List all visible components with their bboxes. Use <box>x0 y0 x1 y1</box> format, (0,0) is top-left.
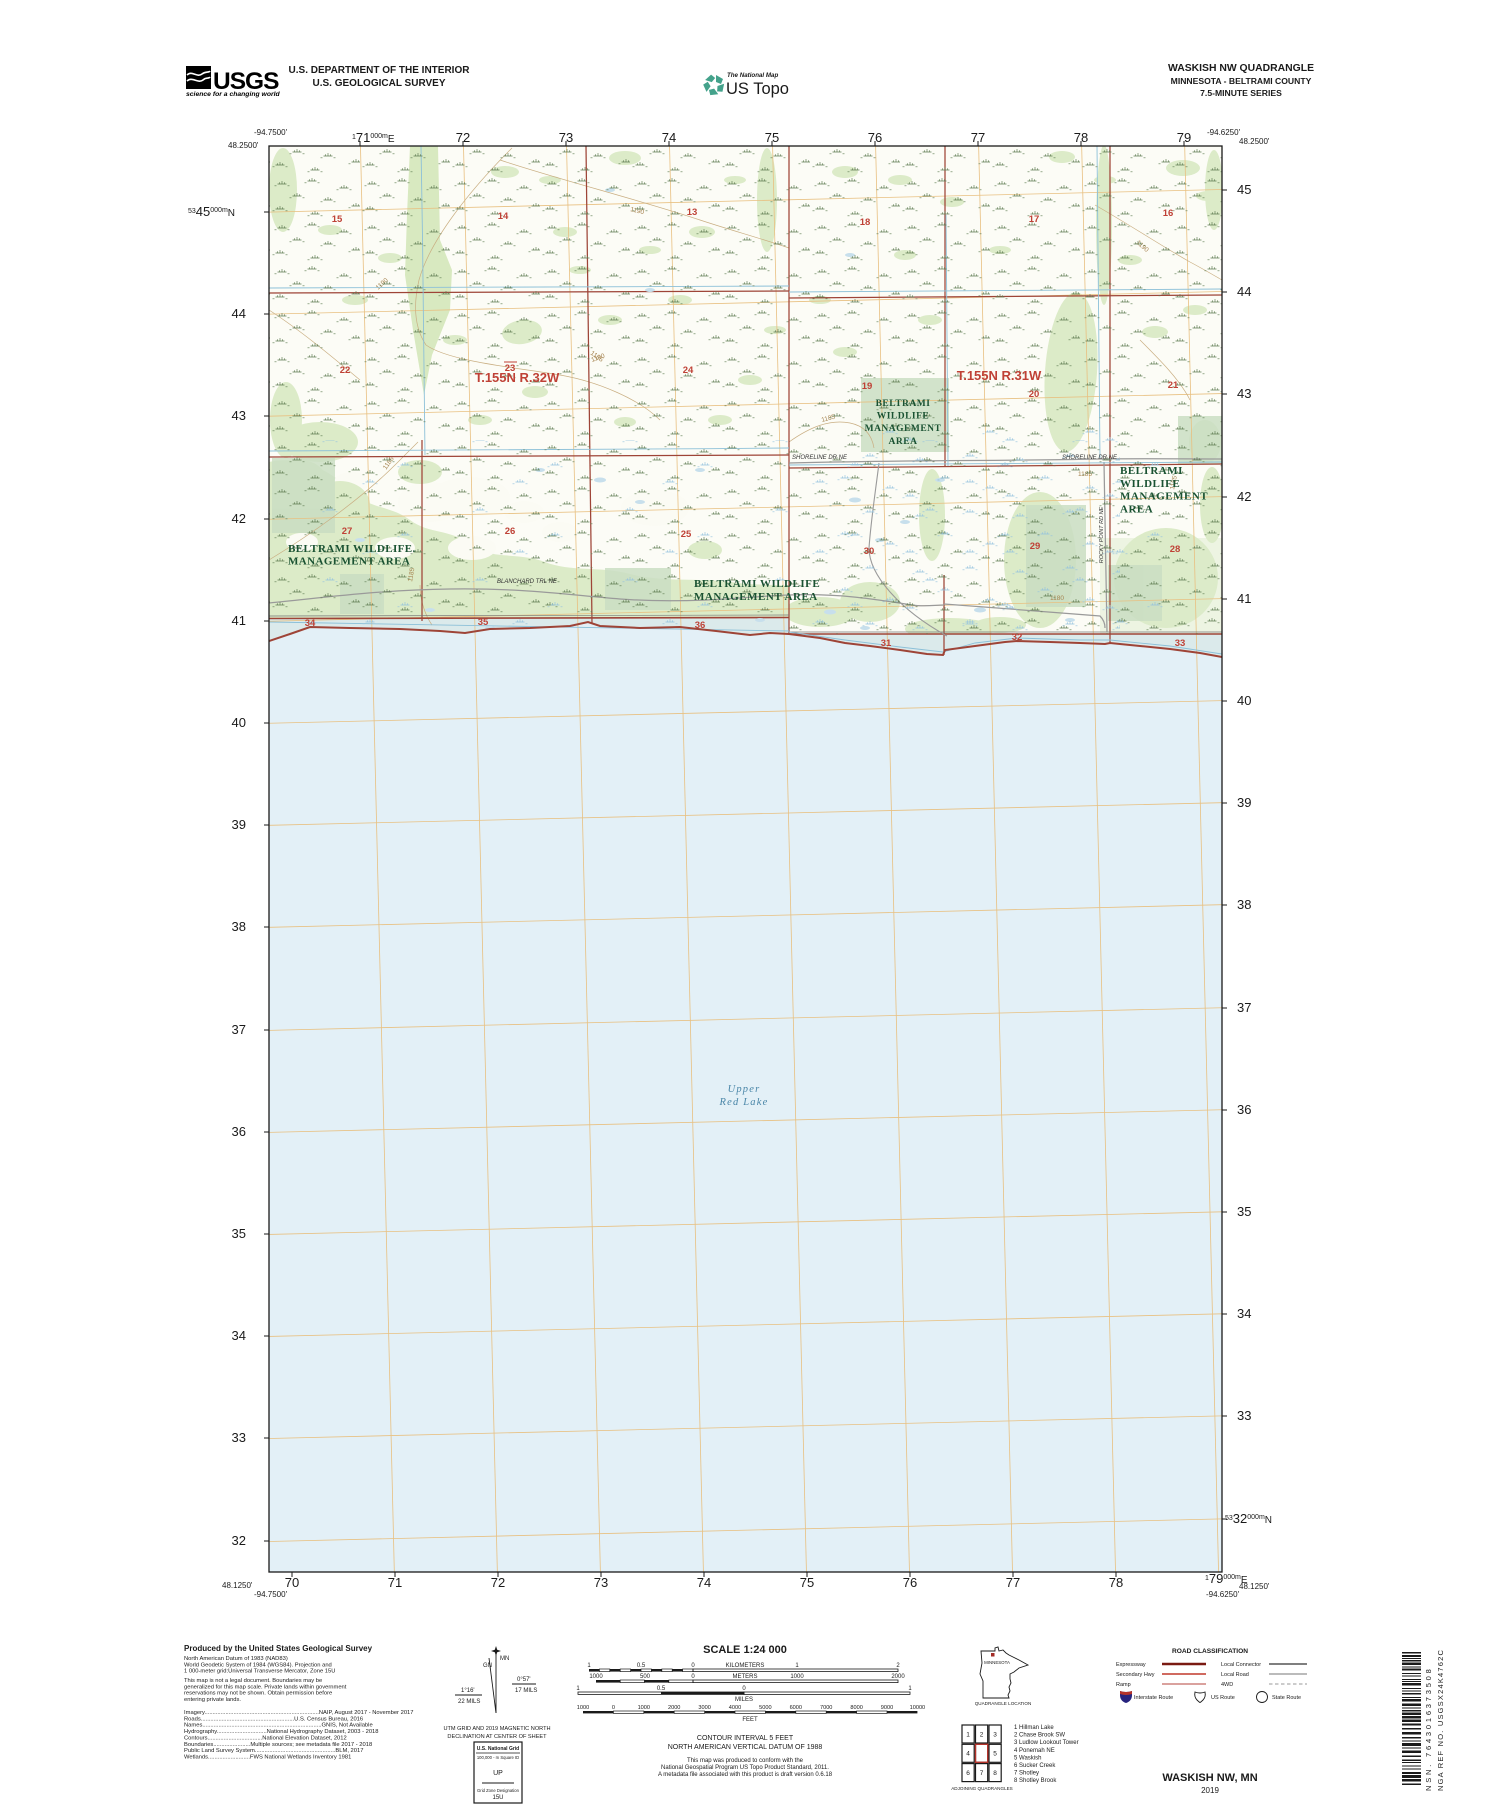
svg-text:WILDLIFE: WILDLIFE <box>877 412 930 422</box>
svg-text:100,000 - m Square ID: 100,000 - m Square ID <box>477 1755 519 1760</box>
svg-text:2000: 2000 <box>668 1705 680 1711</box>
svg-text:KILOMETERS: KILOMETERS <box>726 1663 765 1669</box>
svg-text:AREA: AREA <box>889 437 918 447</box>
svg-text:Secondary Hwy: Secondary Hwy <box>1116 1672 1155 1678</box>
svg-text:1: 1 <box>587 1663 591 1669</box>
svg-text:7 Shotley: 7 Shotley <box>1014 1771 1039 1777</box>
svg-text:U.S. DEPARTMENT OF THE INTERIO: U.S. DEPARTMENT OF THE INTERIOR <box>289 65 471 76</box>
svg-text:This map was produced to confo: This map was produced to conform with th… <box>687 1758 804 1764</box>
svg-text:Names.........................: Names...................................… <box>184 1723 373 1729</box>
svg-text:26: 26 <box>505 526 516 537</box>
svg-text:500: 500 <box>640 1674 651 1680</box>
svg-text:4 Ponemah NE: 4 Ponemah NE <box>1014 1748 1055 1754</box>
svg-text:generalized for this map scale: generalized for this map scale. Private … <box>184 1684 347 1690</box>
svg-text:BELTRAMI: BELTRAMI <box>876 399 931 409</box>
svg-text:METERS: METERS <box>732 1674 757 1680</box>
svg-text:Contours......................: Contours................................… <box>184 1735 347 1741</box>
svg-text:35: 35 <box>478 617 489 628</box>
svg-text:WASKISH NW QUADRANGLE: WASKISH NW QUADRANGLE <box>1168 63 1314 74</box>
svg-text:U.S. GEOLOGICAL SURVEY: U.S. GEOLOGICAL SURVEY <box>313 78 446 89</box>
svg-text:70: 70 <box>285 1575 299 1590</box>
svg-text:1: 1 <box>908 1686 912 1692</box>
svg-text:SCALE 1:24 000: SCALE 1:24 000 <box>703 1644 787 1656</box>
svg-text:1000: 1000 <box>589 1674 603 1680</box>
svg-text:27: 27 <box>342 526 353 537</box>
svg-text:Imagery.......................: Imagery.................................… <box>184 1710 414 1716</box>
svg-text:Public Land Survey System..: Public Land Survey System...............… <box>184 1748 363 1754</box>
svg-text:UTM GRID AND 2019 MAGNETIC NOR: UTM GRID AND 2019 MAGNETIC NORTH <box>443 1726 550 1732</box>
svg-text:7: 7 <box>980 1770 984 1777</box>
svg-text:8: 8 <box>993 1770 997 1777</box>
svg-text:33: 33 <box>1237 1408 1251 1423</box>
svg-text:33: 33 <box>1175 638 1186 649</box>
svg-text:7.5-MINUTE SERIES: 7.5-MINUTE SERIES <box>1200 88 1282 98</box>
svg-text:1: 1 <box>966 1731 970 1738</box>
svg-text:0: 0 <box>691 1663 695 1669</box>
svg-text:MN: MN <box>500 1656 509 1662</box>
svg-text:1000: 1000 <box>638 1705 650 1711</box>
svg-text:Local Connector: Local Connector <box>1221 1662 1261 1668</box>
svg-text:34: 34 <box>305 618 316 629</box>
svg-text:MINNESOTA: MINNESOTA <box>984 1660 1010 1665</box>
svg-text:BLANCHARD TRL NE: BLANCHARD TRL NE <box>497 579 558 585</box>
svg-text:6: 6 <box>966 1770 970 1777</box>
svg-text:-94.6250': -94.6250' <box>1206 1590 1240 1599</box>
svg-text:State Route: State Route <box>1272 1695 1301 1701</box>
svg-text:4000: 4000 <box>729 1705 741 1711</box>
svg-text:3000: 3000 <box>698 1705 710 1711</box>
svg-text:0.5: 0.5 <box>637 1663 646 1669</box>
svg-text:74: 74 <box>697 1575 711 1590</box>
svg-text:45: 45 <box>1237 182 1251 197</box>
svg-text:8 Shotley Brook: 8 Shotley Brook <box>1014 1778 1057 1784</box>
svg-text:1000: 1000 <box>790 1674 804 1680</box>
svg-text:ROCKY POINT RD NE: ROCKY POINT RD NE <box>1099 506 1105 563</box>
svg-text:2019: 2019 <box>1201 1786 1219 1795</box>
svg-text:NGA REF NO. USGSX24K4762C: NGA REF NO. USGSX24K4762C <box>1436 1649 1445 1791</box>
svg-text:World Geodetic System of 1984: World Geodetic System of 1984 (WGS84). P… <box>184 1662 332 1668</box>
svg-text:31: 31 <box>881 638 892 649</box>
svg-text:16: 16 <box>1163 208 1174 219</box>
svg-text:48.2500': 48.2500' <box>228 141 259 150</box>
svg-text:75: 75 <box>800 1575 814 1590</box>
svg-text:5: 5 <box>993 1751 997 1758</box>
svg-text:36: 36 <box>1237 1102 1251 1117</box>
svg-text:SHORELINE DR NE: SHORELINE DR NE <box>1062 455 1118 461</box>
svg-text:CONTOUR INTERVAL 5 FEET: CONTOUR INTERVAL 5 FEET <box>697 1735 794 1742</box>
svg-text:1: 1 <box>795 1663 799 1669</box>
svg-text:National Geospatial Program US: National Geospatial Program US Topo Prod… <box>661 1765 829 1771</box>
svg-text:AREA: AREA <box>1120 503 1153 515</box>
svg-text:3: 3 <box>993 1731 997 1738</box>
svg-text:22: 22 <box>340 365 351 376</box>
svg-text:20: 20 <box>1029 389 1040 400</box>
svg-text:15U: 15U <box>492 1795 503 1801</box>
svg-text:42: 42 <box>1237 489 1251 504</box>
svg-text:73: 73 <box>594 1575 608 1590</box>
svg-text:1: 1 <box>576 1686 580 1692</box>
svg-text:BELTRAMI WILDLIFE.: BELTRAMI WILDLIFE. <box>288 543 416 555</box>
svg-text:76: 76 <box>903 1575 917 1590</box>
svg-text:Red Lake: Red Lake <box>719 1097 769 1108</box>
svg-text:Wetlands......................: Wetlands..........................FWS Na… <box>184 1755 351 1761</box>
svg-text:MANAGEMENT AREA: MANAGEMENT AREA <box>694 591 818 603</box>
svg-text:UP: UP <box>493 1770 503 1777</box>
svg-text:5345000mN: 5345000mN <box>188 204 235 219</box>
svg-text:39: 39 <box>1237 795 1251 810</box>
svg-text:5000: 5000 <box>759 1705 771 1711</box>
svg-text:ADJOINING QUADRANGLES: ADJOINING QUADRANGLES <box>951 1786 1013 1791</box>
svg-text:0: 0 <box>742 1686 746 1692</box>
svg-text:DECLINATION AT CENTER OF SHEET: DECLINATION AT CENTER OF SHEET <box>447 1734 547 1740</box>
svg-text:Produced by the United States: Produced by the United States Geological… <box>184 1644 373 1653</box>
svg-text:WILDLIFE: WILDLIFE <box>1120 478 1180 490</box>
svg-text:The National Map: The National Map <box>727 72 778 79</box>
svg-text:7000: 7000 <box>820 1705 832 1711</box>
svg-text:28: 28 <box>1170 544 1181 555</box>
svg-text:36: 36 <box>695 620 706 631</box>
svg-text:21: 21 <box>1168 380 1179 391</box>
svg-text:Hydrography...................: Hydrography.............................… <box>184 1729 379 1735</box>
svg-text:171000mE: 171000mE <box>352 130 395 145</box>
svg-text:0°57': 0°57' <box>517 1677 531 1683</box>
svg-text:4WD: 4WD <box>1221 1682 1233 1688</box>
svg-text:24: 24 <box>683 365 694 376</box>
svg-text:3 Ludlow Lookout Tower: 3 Ludlow Lookout Tower <box>1014 1740 1079 1746</box>
svg-text:35: 35 <box>1237 1204 1251 1219</box>
svg-text:US Topo: US Topo <box>726 80 789 98</box>
svg-text:A metadata file associated wit: A metadata file associated with this pro… <box>658 1772 833 1778</box>
svg-text:Roads.........................: Roads...................................… <box>184 1716 363 1722</box>
svg-text:6 Sucker Creek: 6 Sucker Creek <box>1014 1763 1056 1769</box>
svg-text:2: 2 <box>896 1663 900 1669</box>
svg-text:Expressway: Expressway <box>1116 1662 1146 1668</box>
svg-text:17: 17 <box>1029 214 1040 225</box>
svg-text:30: 30 <box>864 546 875 557</box>
svg-text:17 MILS: 17 MILS <box>515 1688 537 1694</box>
svg-text:-94.7500': -94.7500' <box>254 128 288 137</box>
svg-text:41: 41 <box>1237 591 1251 606</box>
svg-text:reservations may not be shown.: reservations may not be shown. Obtain pe… <box>184 1691 332 1697</box>
svg-text:NORTH AMERICAN VERTICAL DATUM: NORTH AMERICAN VERTICAL DATUM OF 1988 <box>668 1744 823 1751</box>
svg-text:15: 15 <box>332 214 343 225</box>
svg-text:36: 36 <box>232 1124 246 1139</box>
svg-text:71: 71 <box>388 1575 402 1590</box>
svg-text:entering private lands.: entering private lands. <box>184 1697 241 1703</box>
svg-text:13: 13 <box>687 207 698 218</box>
svg-text:32: 32 <box>232 1533 246 1548</box>
svg-text:25: 25 <box>681 529 692 540</box>
svg-text:Local Road: Local Road <box>1221 1672 1249 1678</box>
svg-text:Ramp: Ramp <box>1116 1682 1131 1688</box>
svg-text:35: 35 <box>232 1226 246 1241</box>
svg-text:40: 40 <box>232 715 246 730</box>
svg-text:MANAGEMENT AREA: MANAGEMENT AREA <box>288 556 410 568</box>
svg-text:4: 4 <box>966 1751 970 1758</box>
svg-text:2 Chase Brook SW: 2 Chase Brook SW <box>1014 1733 1065 1739</box>
svg-text:29: 29 <box>1030 541 1041 552</box>
svg-text:32: 32 <box>1012 632 1023 643</box>
svg-text:38: 38 <box>232 919 246 934</box>
svg-text:-94.6250': -94.6250' <box>1207 128 1241 137</box>
svg-text:1°16': 1°16' <box>461 1688 475 1694</box>
svg-text:10000: 10000 <box>910 1705 926 1711</box>
svg-text:GN: GN <box>483 1663 492 1669</box>
svg-text:77: 77 <box>1006 1575 1020 1590</box>
svg-text:44: 44 <box>1237 284 1251 299</box>
svg-text:72: 72 <box>491 1575 505 1590</box>
svg-text:BELTRAMI WILDLIFE: BELTRAMI WILDLIFE <box>694 578 820 590</box>
svg-text:T.155N R.31W: T.155N R.31W <box>957 368 1042 383</box>
svg-text:Interstate Route: Interstate Route <box>1134 1695 1173 1701</box>
svg-text:QUADRANGLE LOCATION: QUADRANGLE LOCATION <box>975 1701 1032 1706</box>
svg-text:33: 33 <box>232 1430 246 1445</box>
svg-text:0: 0 <box>691 1674 695 1680</box>
svg-text:18: 18 <box>860 217 871 228</box>
svg-text:2: 2 <box>980 1731 984 1738</box>
svg-text:48.2500': 48.2500' <box>1239 137 1270 146</box>
svg-text:FEET: FEET <box>742 1717 758 1723</box>
svg-text:U.S. National Grid: U.S. National Grid <box>477 1746 520 1752</box>
svg-text:US Route: US Route <box>1211 1695 1235 1701</box>
svg-text:34: 34 <box>232 1328 246 1343</box>
svg-text:0.5: 0.5 <box>657 1686 666 1692</box>
svg-text:2000: 2000 <box>891 1674 905 1680</box>
svg-text:34: 34 <box>1237 1306 1251 1321</box>
svg-text:MILES: MILES <box>735 1697 753 1703</box>
svg-text:14: 14 <box>498 211 509 222</box>
svg-text:9000: 9000 <box>881 1705 893 1711</box>
svg-text:39: 39 <box>232 817 246 832</box>
svg-text:Grid Zone Designation: Grid Zone Designation <box>477 1788 520 1793</box>
svg-text:78: 78 <box>1109 1575 1123 1590</box>
svg-text:1 000-meter grid:Universal Tra: 1 000-meter grid:Universal Transverse Me… <box>184 1669 335 1675</box>
svg-text:This map is not a legal docume: This map is not a legal document. Bounda… <box>184 1678 322 1684</box>
svg-text:WASKISH NW, MN: WASKISH NW, MN <box>1162 1772 1257 1784</box>
svg-text:ROAD CLASSIFICATION: ROAD CLASSIFICATION <box>1172 1648 1248 1655</box>
svg-text:42: 42 <box>232 511 246 526</box>
svg-text:0: 0 <box>612 1705 615 1711</box>
svg-text:5 Waskish: 5 Waskish <box>1014 1755 1041 1761</box>
svg-text:MINNESOTA - BELTRAMI COUNTY: MINNESOTA - BELTRAMI COUNTY <box>1171 76 1312 86</box>
svg-text:38: 38 <box>1237 897 1251 912</box>
svg-text:MANAGEMENT: MANAGEMENT <box>865 424 942 434</box>
svg-text:19: 19 <box>862 381 873 392</box>
svg-text:1 Hillman Lake: 1 Hillman Lake <box>1014 1725 1054 1731</box>
svg-text:SHORELINE DR NE: SHORELINE DR NE <box>792 455 848 461</box>
svg-text:-94.7500': -94.7500' <box>254 1590 288 1599</box>
svg-text:North American Datum of 1983 (: North American Datum of 1983 (NAD83) <box>184 1656 288 1662</box>
svg-text:22 MILS: 22 MILS <box>458 1699 480 1705</box>
svg-text:5332000mN: 5332000mN <box>1225 1511 1272 1526</box>
svg-text:48.1250': 48.1250' <box>222 1581 253 1590</box>
svg-text:179000mE: 179000mE <box>1205 1571 1248 1586</box>
svg-text:science for a changing world: science for a changing world <box>186 91 281 98</box>
svg-text:NSN. 7643016373508: NSN. 7643016373508 <box>1424 1666 1433 1791</box>
svg-text:41: 41 <box>232 613 246 628</box>
svg-text:Upper: Upper <box>728 1084 761 1095</box>
svg-text:44: 44 <box>232 306 246 321</box>
svg-text:MANAGEMENT: MANAGEMENT <box>1120 491 1208 503</box>
svg-text:Boundaries....................: Boundaries.......................Multipl… <box>184 1742 372 1748</box>
svg-text:6000: 6000 <box>790 1705 802 1711</box>
svg-text:37: 37 <box>232 1022 246 1037</box>
svg-text:43: 43 <box>1237 386 1251 401</box>
svg-text:1000: 1000 <box>577 1705 589 1711</box>
svg-text:43: 43 <box>232 408 246 423</box>
svg-text:BELTRAMI: BELTRAMI <box>1120 465 1183 477</box>
svg-text:T.155N R.32W: T.155N R.32W <box>475 370 560 385</box>
svg-text:8000: 8000 <box>850 1705 862 1711</box>
svg-text:37: 37 <box>1237 1000 1251 1015</box>
svg-text:40: 40 <box>1237 693 1251 708</box>
